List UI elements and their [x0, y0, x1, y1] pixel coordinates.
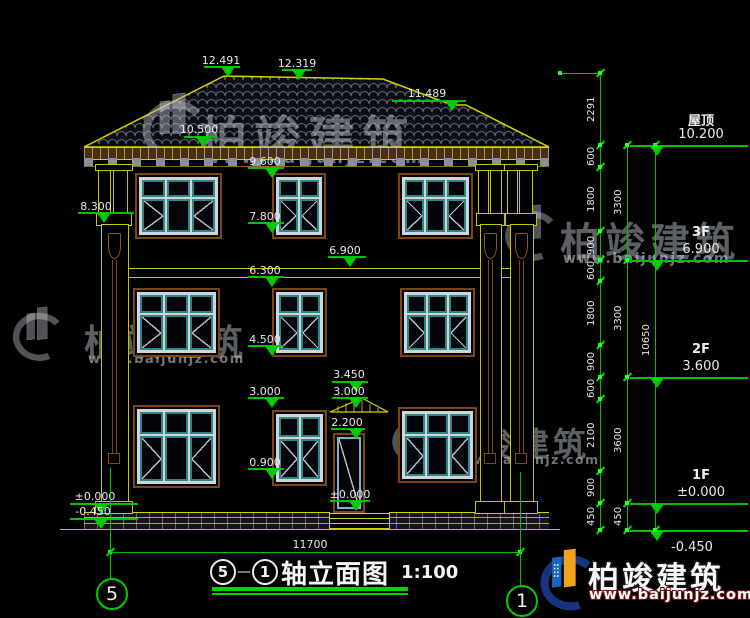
dim-node [598, 343, 602, 347]
window [398, 173, 473, 239]
dim-node [598, 469, 602, 473]
window-transom-pane [142, 180, 165, 197]
casement-diagonal [142, 459, 161, 480]
dim-node [625, 375, 629, 379]
casement-diagonal [142, 317, 161, 333]
ground-line [60, 529, 560, 530]
level-value: ±0.000 [655, 485, 747, 500]
window-transom-pane [190, 295, 213, 313]
window [398, 407, 477, 483]
axis-line-left [110, 468, 111, 578]
dim-node [625, 501, 629, 505]
level-name-2F: 2F [655, 342, 747, 357]
level-value: -0.450 [646, 540, 738, 555]
window-transom-pane [427, 414, 447, 434]
window-pane [426, 199, 445, 232]
dim-chain-middle-value: 3300 [612, 145, 625, 260]
elevation-mark-triangle-floor3_soffit [343, 257, 357, 267]
dim-node [598, 229, 602, 233]
elevation-mark-triangle-win1_sill [265, 469, 279, 479]
window-pane [449, 315, 468, 350]
brand-logo-url: www.baijunjz.com [589, 587, 750, 603]
casement-diagonal [407, 438, 423, 456]
dim-node [598, 397, 602, 401]
title-underline-thick [212, 587, 408, 591]
window-transom-pane [279, 180, 298, 197]
window-pane [167, 199, 190, 232]
dim-node [598, 258, 602, 262]
elevation-mark-label-grade_left: -0.450 [59, 505, 127, 518]
window-transom-pane [167, 180, 190, 197]
casement-diagonal [407, 216, 422, 231]
elevation-mark-triangle-hip_right [445, 101, 459, 111]
casement-diagonal [142, 438, 161, 459]
window-frame [276, 177, 322, 235]
pilaster-left-upper-capital [95, 164, 133, 171]
title-axis-start-bubble: 5 [210, 559, 236, 585]
casement-diagonal [303, 317, 319, 333]
title-text: 轴立面图 [281, 554, 389, 591]
window-pane [142, 199, 165, 232]
casement-diagonal [449, 216, 464, 231]
elevation-mark-triangle-ridge_right [292, 70, 306, 80]
window-pane [405, 199, 424, 232]
dim-node [598, 71, 602, 75]
title-scale: 1:100 [401, 562, 458, 583]
casement-diagonal [303, 441, 319, 459]
brand-logo-icon [545, 549, 588, 607]
title-underline-thin [212, 593, 408, 595]
window-transom-pane [407, 295, 426, 313]
casement-diagonal [194, 201, 213, 216]
pilaster-right-b-downpipe [519, 260, 524, 453]
drawing-title: 5 — 1 轴立面图 1:100 [210, 555, 458, 589]
elevation-mark-triangle-band [265, 277, 279, 287]
dim-node [598, 528, 602, 532]
window-pane [190, 436, 213, 481]
casement-diagonal [192, 438, 211, 459]
elevation-mark-label-ground_left: ±0.000 [61, 490, 129, 503]
elevation-mark-triangle-door_head [349, 429, 363, 439]
elevation-mark-triangle-ridge_left [221, 67, 235, 77]
pilaster-right-b-upper-shaft [519, 168, 533, 215]
pilaster-left-downpipe [112, 260, 117, 453]
elevation-mark-triangle-canopy_base [349, 398, 363, 408]
window-transom-pane [428, 295, 447, 313]
pilaster-left-downpipe-shoe [108, 453, 120, 464]
title-axis-end-bubble: 1 [252, 559, 278, 585]
pilaster-right-b-upper-shaft [507, 168, 518, 215]
casement-diagonal [303, 333, 319, 349]
casement-diagonal [144, 216, 163, 231]
pilaster-right-a-base [475, 501, 506, 514]
window-frame [404, 292, 471, 353]
overall-dim-line [110, 552, 520, 553]
window-pane [165, 436, 188, 481]
window-frame [137, 409, 216, 484]
window-transom-pane [165, 412, 188, 434]
plinth-brick-course [84, 512, 549, 530]
window-transom-pane [192, 180, 215, 197]
elevation-mark-label-eave: 10.500 [165, 123, 233, 136]
pilaster-right-b-base [504, 501, 538, 514]
casement-diagonal [451, 333, 466, 349]
dim-chain-inner-value: 2291 [585, 73, 598, 145]
casement-diagonal [407, 456, 423, 474]
dim-node [598, 375, 602, 379]
window-pane [405, 436, 425, 476]
level-line [630, 145, 748, 147]
window-transom-pane [165, 295, 188, 313]
window [272, 173, 326, 239]
pilaster-right-a-upper-shaft [490, 168, 502, 215]
window-transom-pane [300, 180, 319, 197]
casement-diagonal [192, 333, 211, 349]
level-triangle [650, 504, 664, 514]
dim-chain-inner-value: 900 [585, 471, 598, 503]
window-transom-pane [140, 295, 163, 313]
casement-diagonal [409, 317, 424, 333]
axis-bubble-left: 5 [96, 578, 128, 610]
casement-diagonal [281, 317, 297, 333]
dim-node [625, 143, 629, 147]
dim-chain-line-outer [655, 145, 656, 530]
dim-node [625, 528, 629, 532]
window-pane [165, 315, 188, 350]
level-name-1F: 1F [655, 468, 747, 483]
window-pane [190, 315, 213, 350]
window-pane [450, 436, 470, 476]
level-line [630, 260, 748, 262]
elevation-mark-label-canopy_top: 3.450 [315, 368, 383, 381]
level-value: 6.900 [655, 242, 747, 257]
window-transom-pane [405, 414, 425, 434]
floor-band-upper [112, 268, 520, 269]
casement-diagonal [303, 459, 319, 477]
window [133, 405, 220, 488]
dim-chain-middle-value: 3600 [612, 377, 625, 503]
casement-diagonal [192, 317, 211, 333]
elevation-mark-triangle-eave [196, 137, 210, 147]
casement-diagonal [194, 216, 213, 231]
casement-diagonal [452, 456, 468, 474]
window-transom-pane [450, 414, 470, 434]
dim-node [653, 528, 657, 532]
window-transom-pane [279, 295, 299, 313]
axis-bubble-right: 1 [506, 585, 538, 617]
window-transom-pane [279, 417, 299, 437]
pilaster-right-a-upper-shaft [478, 168, 489, 215]
elevation-mark-triangle-win1_head [265, 398, 279, 408]
dim-chain-overall-value: 10650 [640, 280, 653, 400]
overall-dim-value: 11700 [270, 538, 350, 551]
window-transom-pane [447, 180, 466, 197]
window-pane [192, 199, 215, 232]
dim-chain-middle-value: 450 [612, 503, 625, 530]
axis-line-right [520, 472, 521, 585]
dim-chain-inner-value: 900 [585, 231, 598, 260]
dim-chain-inner-value: 600 [585, 260, 598, 281]
title-dash: — [237, 564, 251, 580]
pilaster-right-a-downpipe-shoe [484, 453, 496, 464]
casement-diagonal [451, 317, 466, 333]
window-pane [428, 315, 447, 350]
pilaster-right-a-shield-ornament [484, 233, 497, 259]
elevation-mark-label-hip_right: 11.489 [393, 87, 461, 100]
pilaster-right-b-shield-ornament [515, 233, 528, 259]
cad-elevation-drawing: 柏竣建筑 www.baijunjz.com 柏竣建筑 www.baijunjz.… [0, 0, 750, 618]
dim-node [598, 501, 602, 505]
pilaster-right-a-downpipe [488, 260, 493, 453]
pilaster-left-shield-ornament [108, 233, 121, 259]
casement-diagonal [302, 216, 317, 231]
casement-diagonal [409, 333, 424, 349]
floor-band-lower [112, 277, 520, 278]
dim-node [653, 143, 657, 147]
window-pane [407, 315, 426, 350]
casement-diagonal [142, 333, 161, 349]
dim-chain-inner-value: 600 [585, 145, 598, 167]
window-transom-pane [190, 412, 213, 434]
dim-chain-inner-value: 1800 [585, 281, 598, 345]
pilaster-right-a-upper-capital [475, 164, 506, 171]
elevation-mark-triangle-door_base [349, 501, 363, 511]
dim-chain-inner-value: 900 [585, 345, 598, 377]
elevation-mark-triangle-grade_left [94, 519, 108, 529]
level-value: 10.200 [655, 127, 747, 142]
window-pane [300, 199, 319, 232]
window-pane [140, 436, 163, 481]
dim-node [598, 143, 602, 147]
elevation-mark-triangle-win3_sill [265, 223, 279, 233]
casement-diagonal [302, 201, 317, 216]
window-transom-pane [301, 295, 321, 313]
elevation-mark-triangle-win3_head [265, 168, 279, 178]
window-transom-pane [405, 180, 424, 197]
pilaster-right-b-downpipe-shoe [515, 453, 527, 464]
pilaster-right-b-upper-capital [504, 164, 538, 171]
window-frame [402, 177, 469, 235]
level-line [630, 503, 748, 505]
dim-chain-line-middle [627, 145, 628, 530]
window [135, 173, 222, 239]
dim-node [598, 165, 602, 169]
level-line [630, 530, 748, 532]
window-frame [402, 411, 473, 479]
dim-chain-middle-value: 3300 [612, 260, 625, 377]
level-value: 3.600 [655, 359, 747, 374]
level-name-3F: 3F [655, 225, 747, 240]
window-transom-pane [426, 180, 445, 197]
dim-node [598, 279, 602, 283]
dim-chain-inner-value: 2100 [585, 399, 598, 471]
level-triangle [650, 261, 664, 271]
casement-diagonal [452, 438, 468, 456]
window [400, 288, 475, 357]
window-pane [427, 436, 447, 476]
dim-chain-inner-value: 600 [585, 377, 598, 399]
window-pane [447, 199, 466, 232]
casement-diagonal [144, 201, 163, 216]
window-pane [140, 315, 163, 350]
window-pane [301, 315, 321, 350]
casement-diagonal [192, 459, 211, 480]
window [133, 288, 220, 357]
dim-node [625, 258, 629, 262]
window-transom-pane [449, 295, 468, 313]
door-steps [329, 512, 390, 529]
elevation-mark-triangle-win2_sill [265, 346, 279, 356]
elevation-mark-triangle-pilaster_capital [97, 213, 111, 223]
window [272, 288, 327, 357]
casement-diagonal [449, 201, 464, 216]
window-frame [139, 177, 218, 235]
window-transom-pane [140, 412, 163, 434]
casement-diagonal [407, 201, 422, 216]
window-pane [301, 439, 321, 479]
dim-chain-inner-value: 450 [585, 503, 598, 530]
dim-chain-inner-value: 1800 [585, 167, 598, 231]
window-frame [137, 292, 216, 353]
dim-node [558, 71, 562, 75]
